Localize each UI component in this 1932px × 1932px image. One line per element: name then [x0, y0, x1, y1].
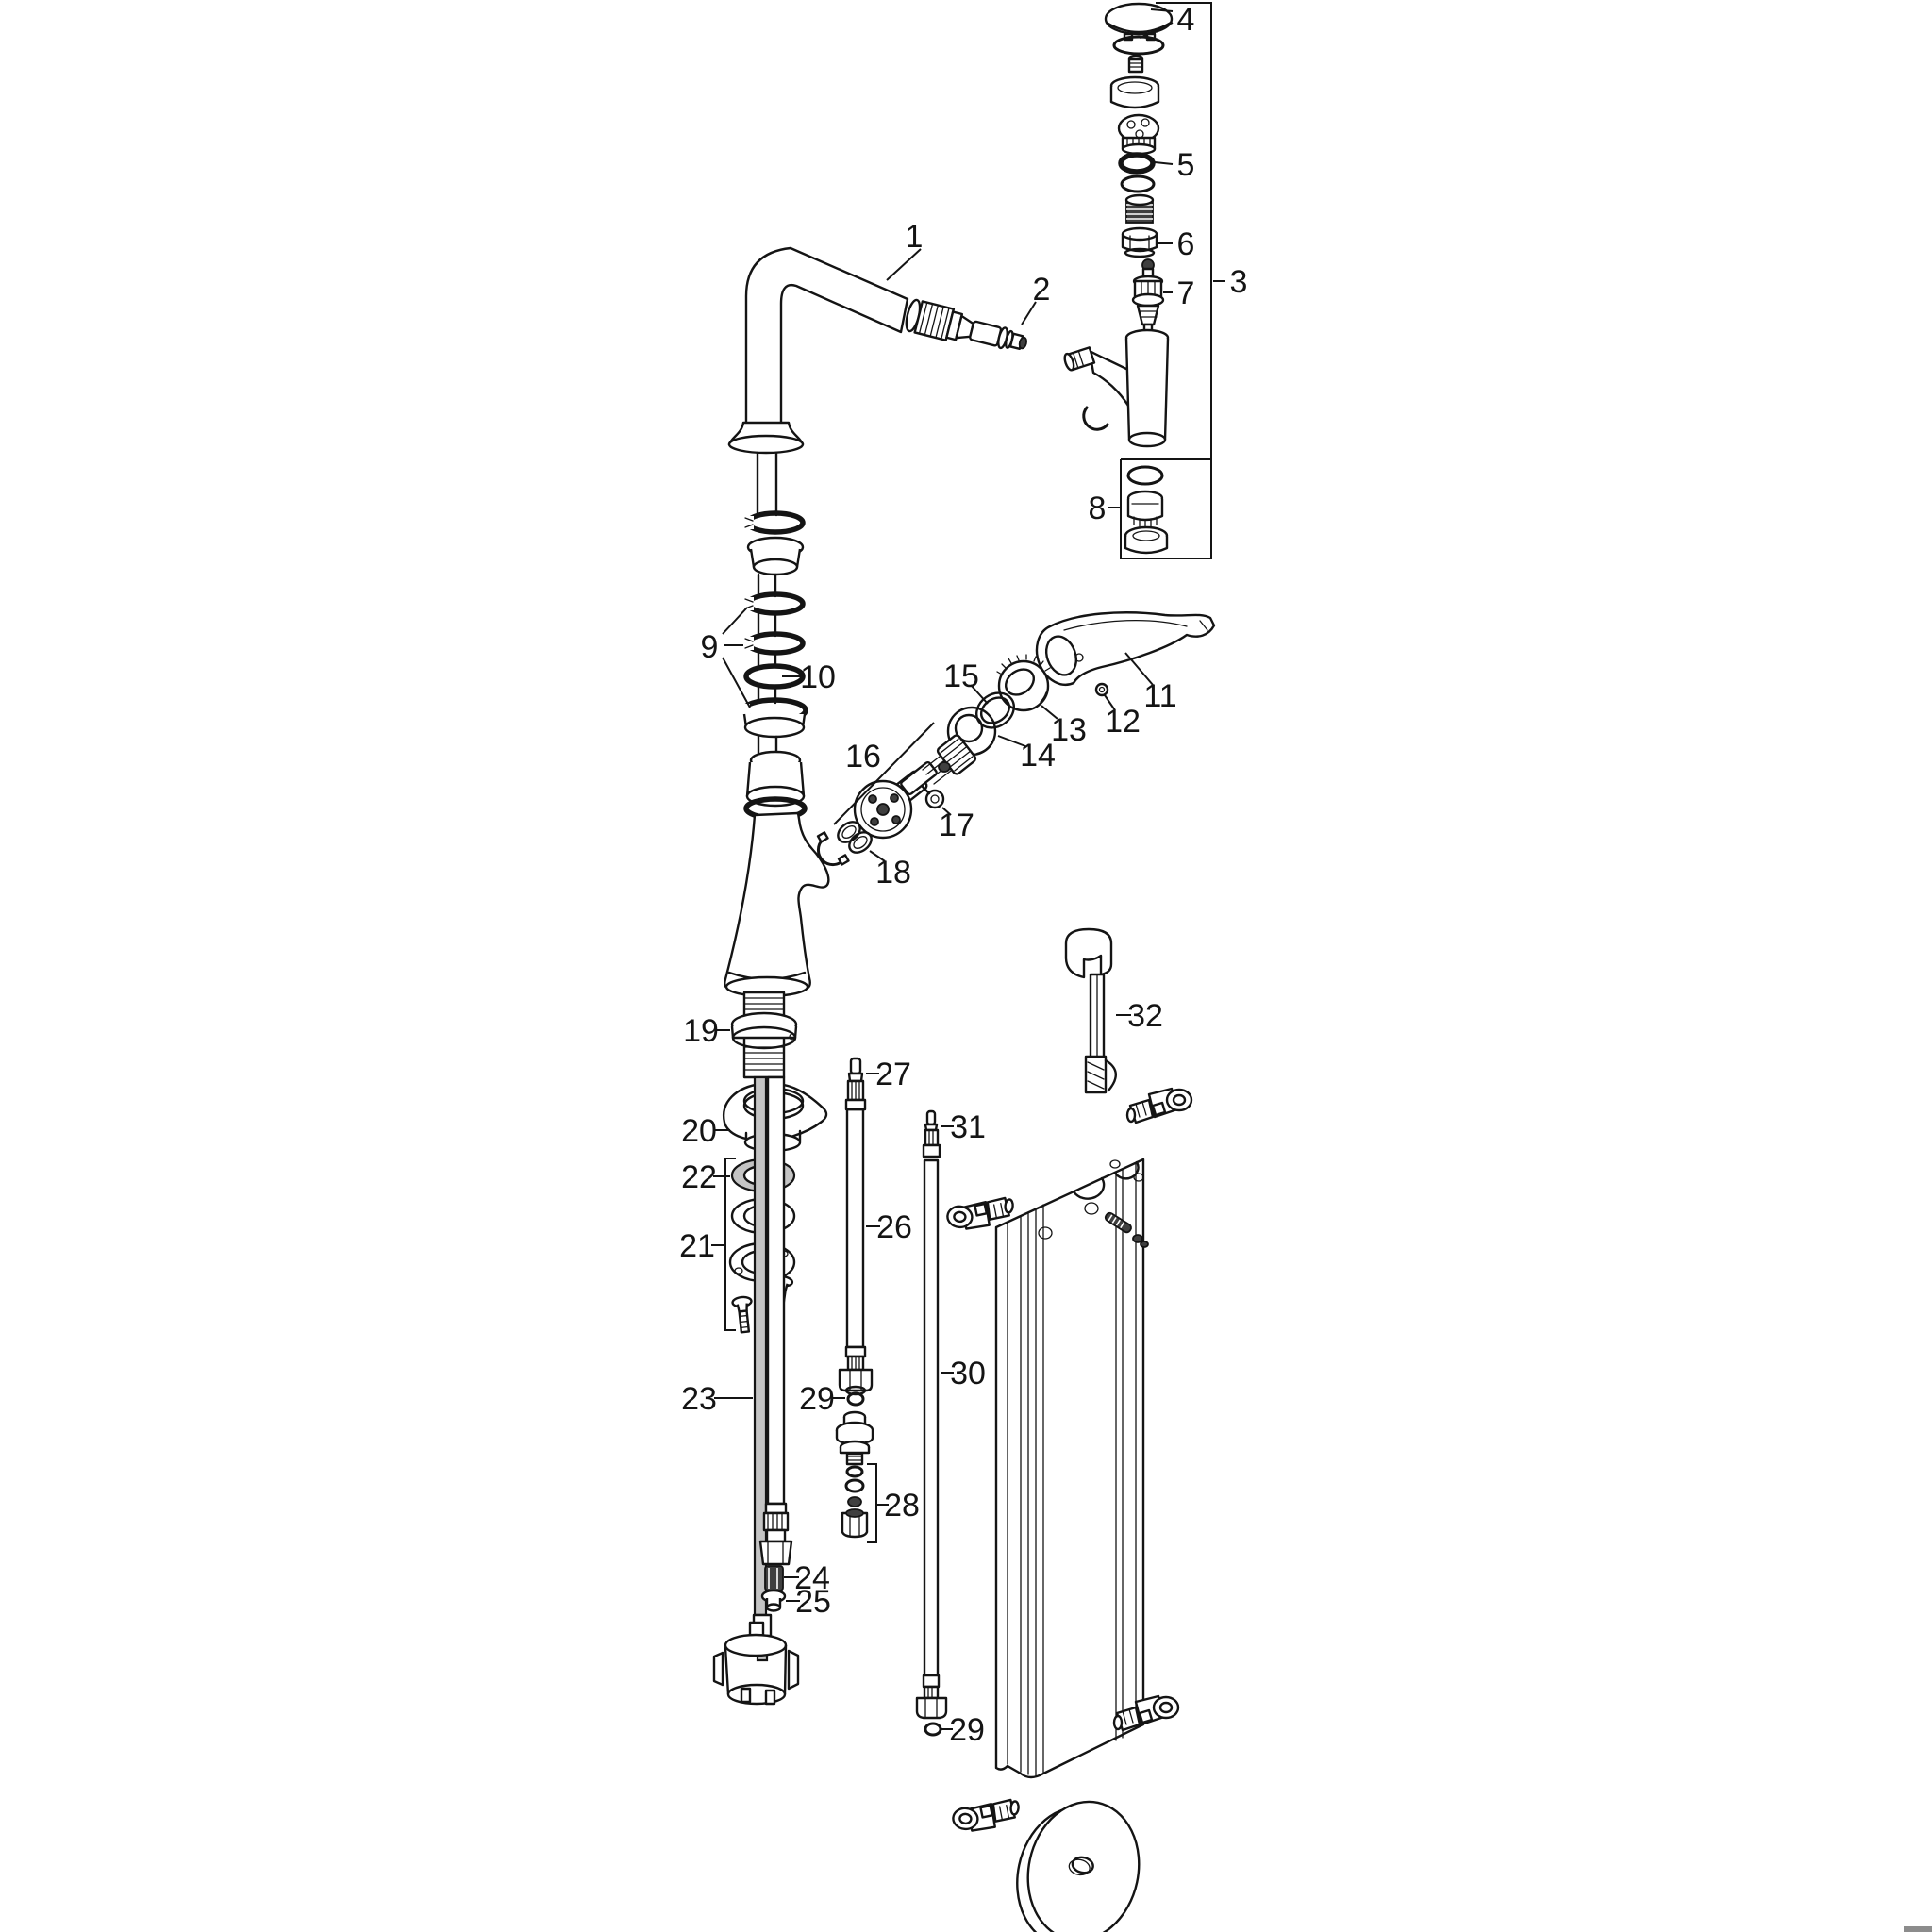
screw-17 — [923, 787, 943, 808]
part-label-31: 31 — [950, 1109, 986, 1145]
part-label-13: 13 — [1051, 712, 1087, 748]
kit-sleeve — [1125, 527, 1167, 553]
spout — [729, 248, 908, 453]
part-label-14: 14 — [1020, 738, 1056, 774]
part-label-9: 9 — [701, 629, 719, 665]
hose-end-connector — [714, 1623, 798, 1704]
part-label-2: 2 — [1033, 272, 1051, 308]
spout-coupling-part-2 — [904, 299, 1030, 359]
clamp-fitting — [1127, 1089, 1191, 1123]
part-label-29: 29 — [949, 1712, 985, 1748]
part-label-29: 29 — [799, 1381, 835, 1417]
swivel-bearing-stack — [746, 752, 805, 818]
o-ring-29b — [925, 1724, 941, 1735]
cartridge-7 — [1133, 259, 1163, 332]
aerator-mesh — [1126, 195, 1153, 223]
faucet-body — [724, 813, 828, 996]
part-label-19: 19 — [683, 1013, 719, 1049]
part-label-4: 4 — [1177, 2, 1195, 38]
part-label-22: 22 — [681, 1159, 717, 1195]
part-label-32: 32 — [1127, 998, 1163, 1034]
handle-11 — [1037, 612, 1214, 684]
collar-cup — [1111, 77, 1158, 108]
hose-30-31 — [917, 1111, 946, 1718]
corner-mark — [1904, 1926, 1932, 1932]
seal-kit-8 — [1125, 467, 1167, 553]
part-label-7: 7 — [1177, 275, 1195, 311]
part-label-21: 21 — [679, 1228, 715, 1264]
part-label-11: 11 — [1143, 678, 1176, 714]
o-ring-5b — [1122, 176, 1154, 192]
ring-13 — [997, 655, 1050, 710]
diagram-drawing: 1234567891011121314151617181920212223242… — [0, 0, 1932, 1932]
bracket-28 — [867, 1464, 876, 1542]
mounting-rail — [996, 1159, 1148, 1777]
ring-5 — [1121, 155, 1153, 172]
part-label-18: 18 — [875, 855, 911, 891]
base-plate-disc — [1005, 1790, 1152, 1932]
o-ring-4b — [1114, 37, 1163, 54]
part-label-26: 26 — [876, 1209, 912, 1245]
part-label-17: 17 — [939, 808, 974, 843]
part-label-12: 12 — [1105, 704, 1141, 740]
spout-shaft-and-rings — [740, 453, 806, 818]
part-label-3: 3 — [1230, 264, 1248, 300]
clamp-fitting — [952, 1795, 1019, 1835]
part-label-16: 16 — [845, 739, 881, 774]
part-label-25: 25 — [795, 1584, 831, 1620]
leader-9 — [723, 608, 747, 634]
spray-head — [1063, 330, 1168, 446]
part-label-10: 10 — [800, 659, 836, 695]
screw — [732, 1296, 755, 1333]
part-label-27: 27 — [875, 1057, 911, 1092]
part-label-1: 1 — [906, 219, 924, 255]
exploded-diagram-canvas: 1234567891011121314151617181920212223242… — [0, 0, 1932, 1932]
part-label-6: 6 — [1177, 226, 1195, 262]
part-label-5: 5 — [1177, 147, 1195, 183]
cap-4 — [1106, 4, 1172, 40]
part-label-15: 15 — [943, 658, 979, 694]
part-label-30: 30 — [950, 1356, 986, 1391]
screw-bit — [1129, 56, 1142, 72]
threaded-shank — [732, 992, 796, 1077]
hose-guide-32 — [1066, 929, 1116, 1092]
retainer — [1119, 115, 1158, 154]
leader-9 — [723, 658, 750, 708]
part-label-8: 8 — [1089, 491, 1107, 526]
part-label-20: 20 — [681, 1113, 717, 1149]
screw-12 — [1096, 684, 1108, 695]
part-24 — [765, 1566, 783, 1591]
guide-tube — [768, 1077, 784, 1504]
leader-5 — [1155, 162, 1173, 164]
connector-28 — [837, 1412, 873, 1537]
nut-6 — [1123, 228, 1157, 257]
kit-aerator — [1128, 491, 1162, 527]
part-label-23: 23 — [681, 1381, 717, 1417]
part-label-28: 28 — [884, 1488, 920, 1524]
